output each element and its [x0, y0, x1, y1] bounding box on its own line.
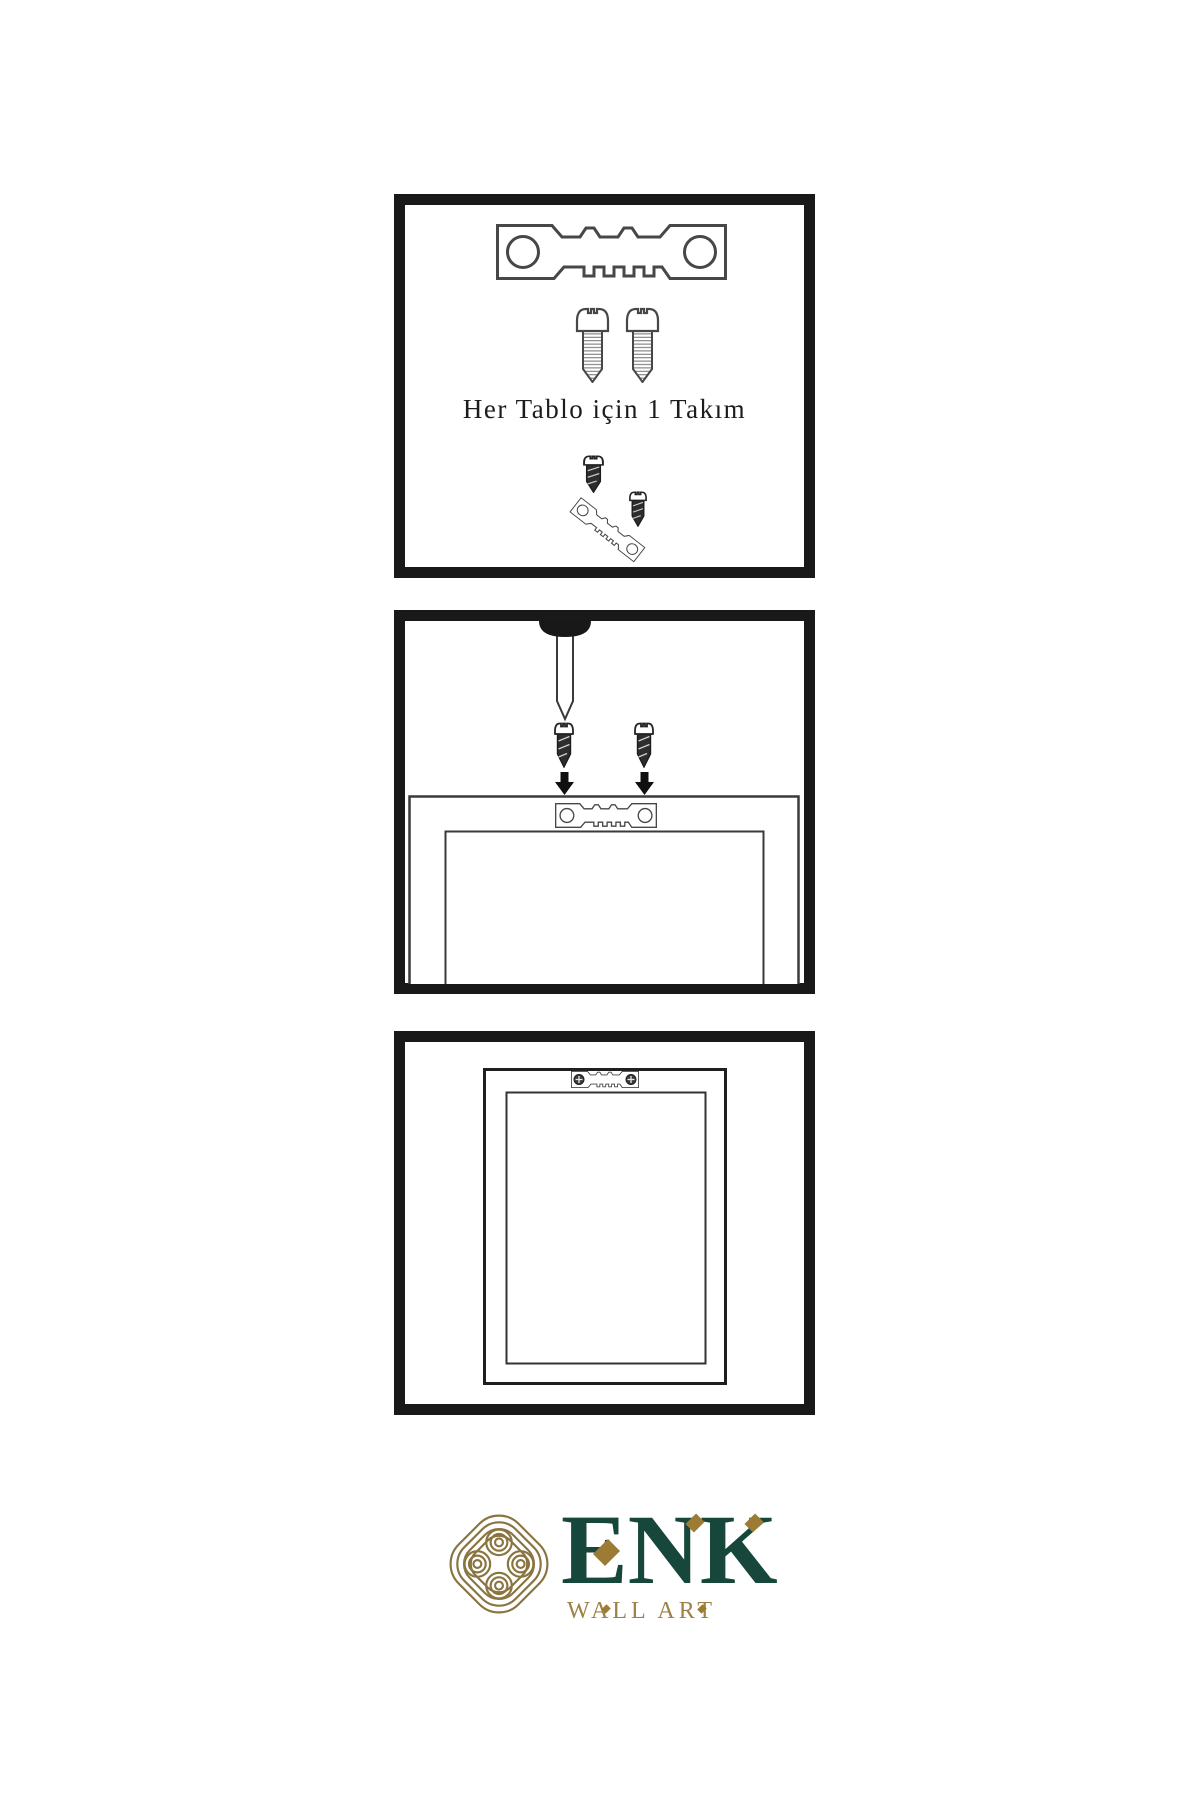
instruction-sheet: Her Tablo için 1 Takım [0, 0, 1200, 1800]
brand-wordmark: ENK [561, 1500, 778, 1600]
screw-icon [555, 724, 573, 768]
kit-panel: Her Tablo için 1 Takım [394, 194, 815, 578]
arrow-down-icon [555, 772, 574, 795]
nail-icon [539, 621, 591, 719]
install-illustration [405, 621, 804, 984]
hung-frame-panel [394, 1031, 815, 1415]
sawtooth-hanger-icon [498, 226, 726, 279]
attach-illustration [570, 456, 646, 561]
install-panel [394, 610, 815, 994]
screw-icon [584, 456, 603, 492]
screw-icon [635, 724, 653, 768]
kit-caption: Her Tablo için 1 Takım [405, 394, 804, 425]
arrow-down-icon [635, 772, 654, 795]
screw-icon [627, 309, 658, 382]
screw-icon [577, 309, 608, 382]
frame-back-inner-outline [446, 832, 764, 985]
screw-icon [630, 492, 646, 526]
knot-logo-icon [440, 1503, 558, 1625]
hung-frame-illustration [405, 1042, 804, 1404]
brand-tagline: WALL ART [567, 1598, 716, 1625]
kit-illustration [405, 205, 804, 567]
frame-inner-outline [507, 1093, 706, 1364]
